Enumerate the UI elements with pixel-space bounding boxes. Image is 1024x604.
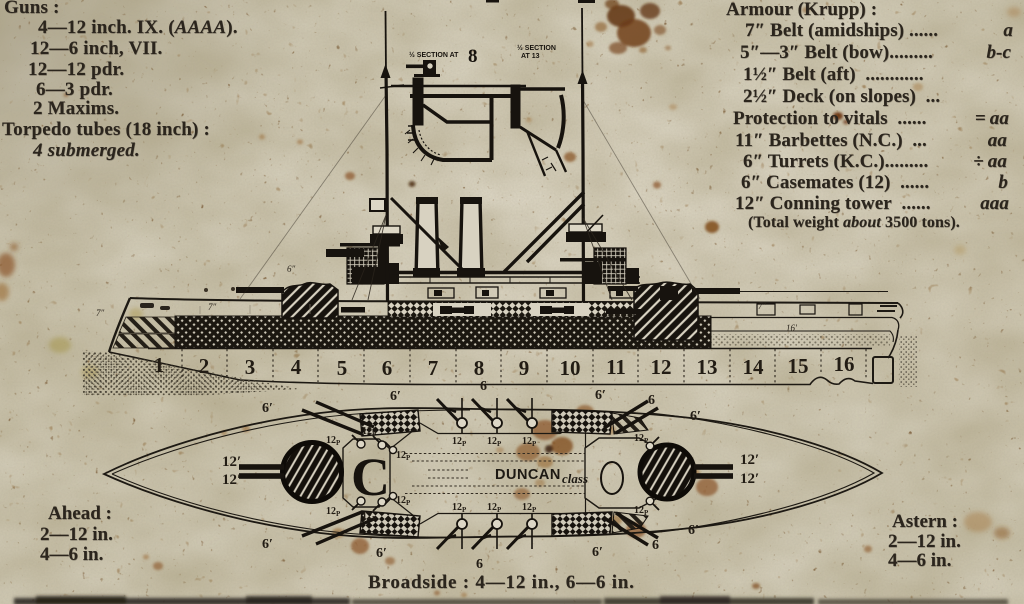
svg-text:7: 7 (428, 356, 439, 380)
svg-text:class: class (562, 471, 588, 486)
svg-text:4: 4 (291, 355, 302, 379)
svg-text:½ SECTION AT: ½ SECTION AT (409, 51, 459, 59)
svg-text:6″: 6″ (287, 264, 296, 274)
svg-text:5: 5 (337, 356, 348, 380)
svg-text:12P: 12P (326, 506, 341, 518)
svg-text:12P: 12P (487, 502, 502, 514)
svg-text:7″: 7″ (96, 308, 105, 318)
svg-text:6: 6 (652, 538, 659, 553)
svg-text:6: 6 (382, 356, 393, 380)
svg-text:7″: 7″ (758, 301, 767, 311)
svg-text:3: 3 (245, 355, 256, 379)
svg-text:6′: 6′ (595, 388, 606, 403)
svg-text:12P: 12P (452, 436, 467, 448)
svg-text:9: 9 (519, 356, 530, 380)
svg-text:6′: 6′ (262, 401, 273, 416)
svg-text:15: 15 (788, 354, 809, 378)
svg-text:AT 13: AT 13 (521, 53, 540, 60)
svg-text:16: 16 (834, 352, 855, 376)
svg-text:8: 8 (474, 356, 485, 380)
svg-text:6: 6 (648, 393, 655, 408)
svg-text:12P: 12P (522, 502, 537, 514)
svg-text:6′: 6′ (262, 537, 273, 552)
svg-text:12′: 12′ (222, 454, 241, 470)
svg-text:12P: 12P (396, 450, 411, 462)
svg-text:12: 12 (651, 355, 672, 379)
svg-text:12P: 12P (522, 436, 537, 448)
svg-text:6: 6 (480, 379, 487, 394)
svg-text:6′: 6′ (688, 523, 699, 538)
svg-text:½ SECTION: ½ SECTION (517, 44, 556, 52)
svg-text:8: 8 (468, 46, 478, 67)
svg-text:12′: 12′ (740, 452, 759, 468)
svg-text:12P: 12P (634, 505, 649, 517)
svg-text:12P: 12P (326, 435, 341, 447)
svg-text:10: 10 (560, 356, 581, 380)
svg-text:2: 2 (199, 354, 210, 378)
svg-text:6: 6 (476, 557, 483, 572)
svg-text:6′: 6′ (390, 389, 401, 404)
svg-text:12P: 12P (634, 433, 649, 445)
svg-text:12′: 12′ (222, 472, 241, 488)
svg-text:6′: 6′ (592, 545, 603, 560)
svg-text:DUNCAN: DUNCAN (495, 467, 561, 483)
svg-text:12P: 12P (396, 495, 411, 507)
svg-text:6′: 6′ (690, 409, 701, 424)
svg-text:16': 16' (786, 323, 798, 333)
svg-text:12′: 12′ (740, 471, 759, 487)
svg-text:1: 1 (154, 353, 165, 377)
svg-text:11: 11 (606, 355, 626, 379)
svg-text:14: 14 (743, 355, 765, 379)
svg-text:12P: 12P (487, 436, 502, 448)
svg-text:6′: 6′ (376, 546, 387, 561)
svg-text:7″: 7″ (208, 302, 217, 312)
svg-text:12P: 12P (452, 502, 467, 514)
svg-text:13: 13 (697, 355, 718, 379)
